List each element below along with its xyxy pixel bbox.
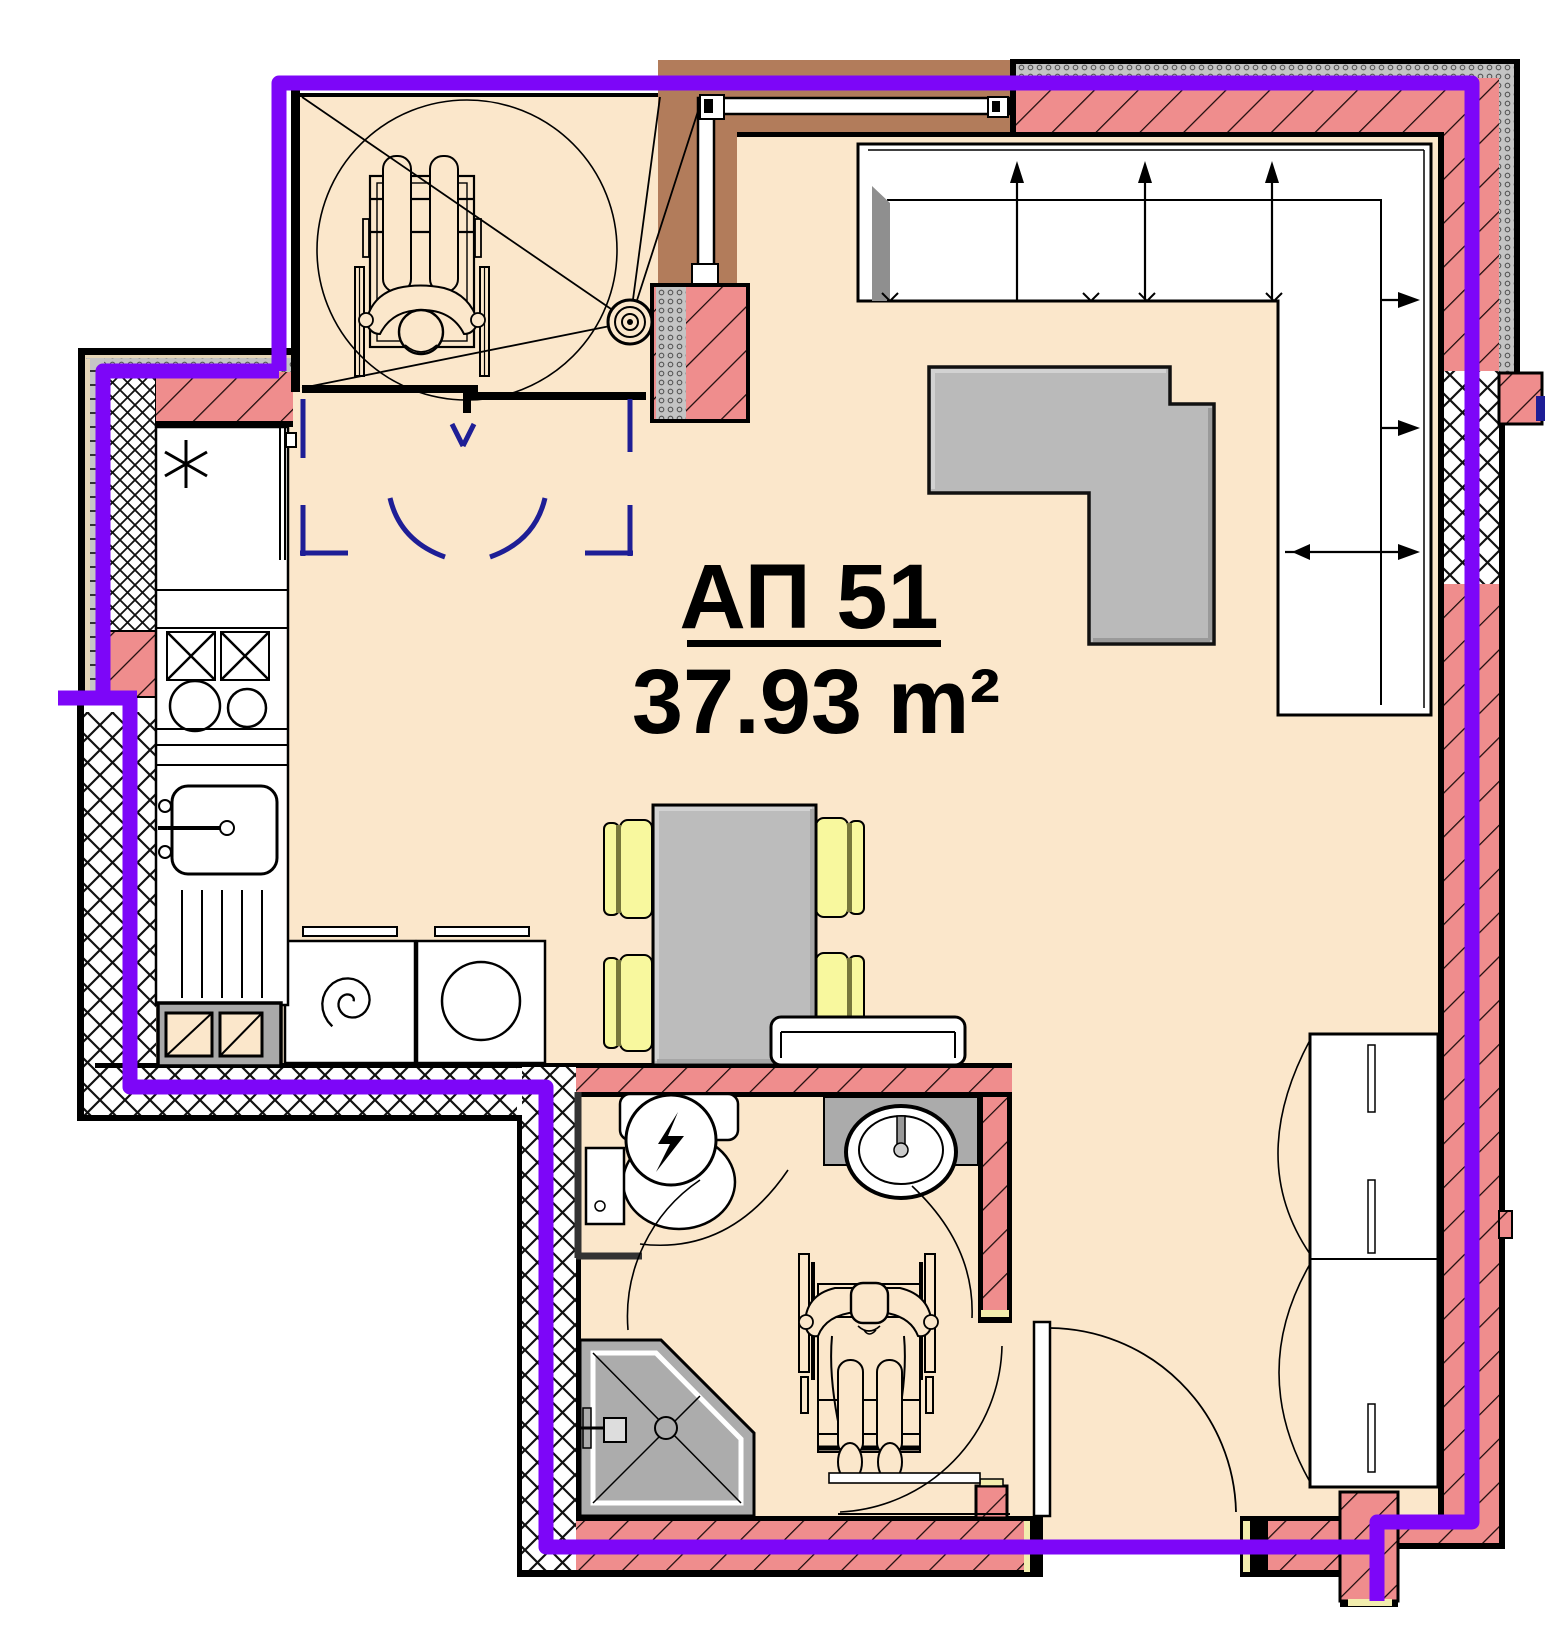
svg-text:37.93 m²: 37.93 m²: [632, 651, 1000, 753]
svg-text:АП 51: АП 51: [679, 546, 938, 648]
